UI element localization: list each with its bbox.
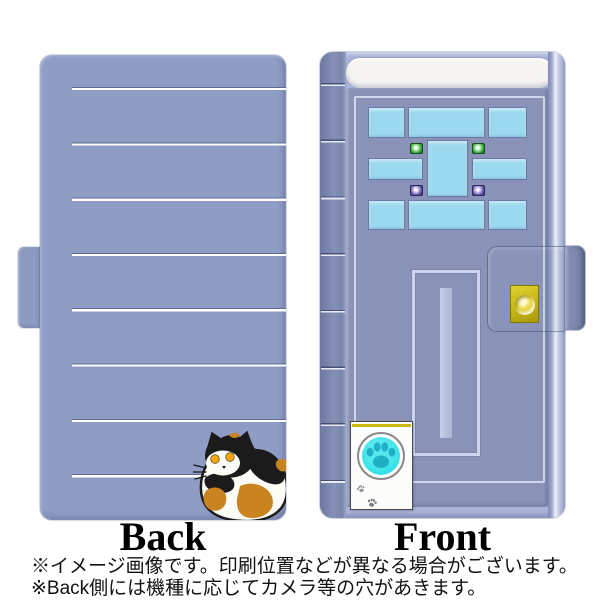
paw-circle xyxy=(362,437,400,475)
mail-slot-bar xyxy=(440,288,452,438)
door-top-trim xyxy=(345,57,554,89)
paw-circle-ring xyxy=(357,432,405,480)
window-pane xyxy=(472,158,527,180)
green-stud-icon xyxy=(472,143,485,154)
small-paw-print-icon xyxy=(366,497,378,509)
back-view-label: Back xyxy=(40,515,286,559)
phone-case-back-cover xyxy=(40,55,286,520)
green-stud-icon xyxy=(410,143,423,154)
purple-stud-icon xyxy=(472,185,485,196)
phone-case-front-cover xyxy=(320,52,565,518)
disclaimer-notes: ※イメージ画像です。印刷位置などが異なる場合がございます。 ※Back側には機種… xyxy=(31,556,600,600)
small-paw-print-icon xyxy=(356,484,366,494)
disclaimer-line-1: ※イメージ画像です。印刷位置などが異なる場合がございます。 xyxy=(31,556,600,578)
purple-stud-icon xyxy=(410,185,423,196)
keyhole-icon xyxy=(515,295,535,315)
window-pane xyxy=(368,107,405,138)
calico-cat-illustration xyxy=(193,430,286,520)
pet-door-gold-hinge xyxy=(352,424,411,427)
case-spine xyxy=(320,52,346,518)
door-window xyxy=(368,107,527,230)
disclaimer-line-2: ※Back側には機種に応じてカメラ等の穴があきます。 xyxy=(31,578,600,600)
product-image-stage: Back Front ※イメージ画像です。印刷位置などが異なる場合がございます。… xyxy=(0,0,600,600)
window-pane xyxy=(408,200,485,230)
window-pane xyxy=(368,200,405,230)
window-pane xyxy=(488,107,527,138)
window-pane xyxy=(368,158,423,180)
gold-lock-plate xyxy=(510,285,539,323)
window-pane xyxy=(408,107,485,138)
window-pane xyxy=(488,200,527,230)
paw-print-icon xyxy=(362,437,400,475)
magnetic-strap-edge-tab xyxy=(565,246,585,330)
horizontal-stripes-pattern xyxy=(72,87,286,478)
pet-door xyxy=(350,421,413,510)
window-pane-center xyxy=(427,140,468,197)
spine-ridge-lines xyxy=(321,83,345,488)
front-view-label: Front xyxy=(320,515,565,559)
